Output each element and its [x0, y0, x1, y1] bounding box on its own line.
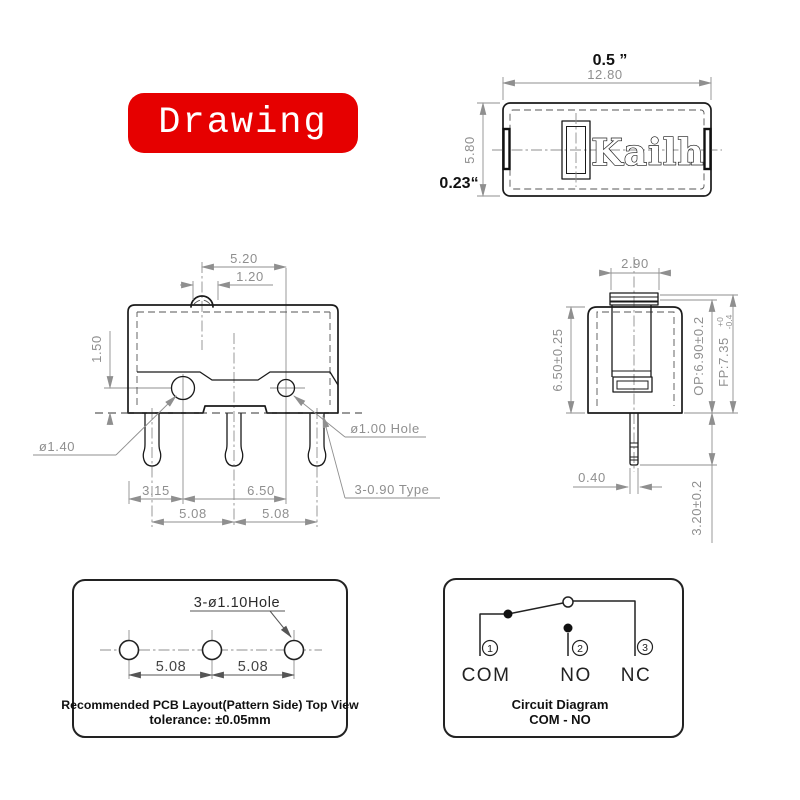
dim-op: OP:6.90±0.2 — [691, 316, 706, 396]
dim-6-50: 6.50 — [247, 483, 275, 498]
pcb-layout: 3-ø1.10Hole 5.08 5.08 Recommended PCB La… — [61, 580, 359, 737]
pcb-caption-line1: Recommended PCB Layout(Pattern Side) Top… — [61, 698, 359, 712]
dim-body-height: 6.50±0.25 — [550, 328, 565, 391]
terminal-no-label: NO — [560, 665, 592, 686]
dim-5-08-right: 5.08 — [262, 506, 290, 521]
terminal-nc-label: NC — [621, 665, 651, 686]
dim-1-50: 1.50 — [89, 335, 104, 363]
pcb-dim-left: 5.08 — [156, 659, 187, 675]
dim-pin-width: 0.40 — [578, 470, 606, 485]
pin-left — [143, 413, 160, 466]
pcb-hole-label: 3-ø1.10Hole — [194, 595, 280, 611]
label-pin-type: 3-0.90 Type — [354, 482, 429, 497]
pcb-hole-2 — [203, 641, 222, 660]
inner-bracket — [137, 372, 338, 385]
switch-front-body — [128, 305, 338, 413]
no-contact-dot — [564, 624, 573, 633]
circuit-caption-line2: COM - NO — [529, 712, 590, 727]
dim-height-inch: 0.23“ — [439, 175, 478, 192]
dim-1-20: 1.20 — [236, 269, 264, 284]
dim-fp: FP:7.35 — [716, 337, 731, 387]
dim-3-15: 3.15 — [142, 483, 170, 498]
terminal-3-number: 3 — [642, 642, 648, 654]
dim-5-08-left: 5.08 — [179, 506, 207, 521]
label-hole-1-00: ø1.00 Hole — [350, 421, 420, 436]
dim-5-20: 5.20 — [230, 251, 258, 266]
pcb-hole-1 — [120, 641, 139, 660]
terminal-2-number: 2 — [577, 643, 583, 655]
dim-2-90: 2.90 — [621, 256, 649, 271]
plunger-foot — [613, 377, 652, 392]
top-view: Kailh 0.5 ” 12.80 5.80 0.23“ — [439, 52, 722, 196]
pcb-caption-line2: tolerance: ±0.05mm — [149, 712, 270, 727]
brand-logo: Kailh — [591, 132, 704, 174]
dim-width-mm: 12.80 — [587, 67, 623, 82]
dim-pin-length: 3.20±0.2 — [689, 480, 704, 535]
side-view: 2.90 6.50±0.25 OP:6.90±0.2 FP:7.35 +0 -0… — [550, 256, 738, 543]
pcb-hole-3 — [285, 641, 304, 660]
front-view: 5.20 1.20 1.50 3.15 6.50 5.08 5.08 ø1.40… — [33, 251, 440, 527]
pivot-contact — [563, 597, 573, 607]
terminal-1-number: 1 — [487, 643, 493, 655]
com-contact-dot — [504, 610, 513, 619]
pin-right — [308, 413, 325, 466]
terminal-com-label: COM — [462, 665, 511, 686]
switch-side-body — [588, 307, 682, 413]
circuit-caption-line1: Circuit Diagram — [512, 697, 609, 712]
pcb-dim-right: 5.08 — [238, 659, 269, 675]
dim-height-mm: 5.80 — [462, 136, 477, 164]
left-clip — [504, 129, 510, 169]
circuit-diagram: 1 2 3 COM NO NC Circuit Diagram COM - NO — [444, 579, 683, 737]
label-hole-1-40: ø1.40 — [39, 439, 75, 454]
technical-drawing-svg: Kailh 0.5 ” 12.80 5.80 0.23“ — [0, 0, 800, 800]
dim-fp-tol-lower: -0.4 — [724, 314, 734, 329]
right-clip — [705, 129, 711, 169]
drawing-sheet: Drawing Kailh 0.5 ” 12.80 — [0, 0, 800, 800]
plunger-stem — [612, 305, 651, 377]
